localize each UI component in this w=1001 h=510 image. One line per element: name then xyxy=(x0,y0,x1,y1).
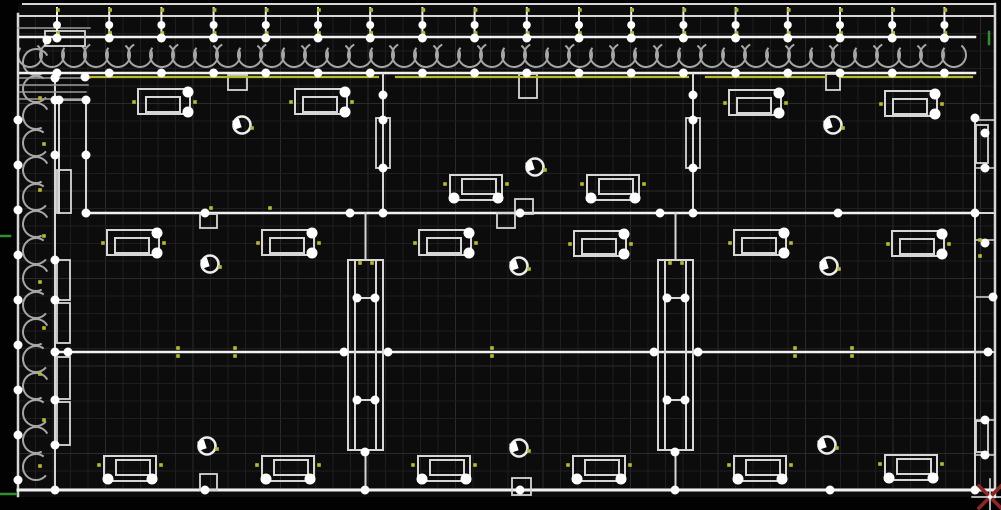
point-marker xyxy=(526,8,530,12)
grip-node xyxy=(930,109,941,120)
grip-node xyxy=(784,21,792,29)
grip-node xyxy=(14,296,23,305)
point-marker xyxy=(38,188,42,192)
point-marker xyxy=(255,463,259,467)
grip-node xyxy=(522,69,531,78)
grip-node xyxy=(834,209,843,218)
grip-node xyxy=(732,21,740,29)
grip-node xyxy=(366,69,375,78)
grip-node xyxy=(777,474,788,485)
point-marker xyxy=(233,354,237,358)
point-marker xyxy=(38,464,42,468)
grip-node xyxy=(340,107,351,118)
grip-node xyxy=(679,69,688,78)
point-marker xyxy=(505,182,509,186)
point-marker xyxy=(411,463,415,467)
grip-node xyxy=(522,34,531,43)
grip-node xyxy=(261,69,270,78)
grip-node xyxy=(379,164,388,173)
grip-node xyxy=(981,451,990,460)
grip-node xyxy=(314,34,323,43)
point-marker xyxy=(473,463,477,467)
point-marker xyxy=(978,254,982,258)
grip-node xyxy=(361,486,370,495)
grip-node xyxy=(663,294,672,303)
grip-node xyxy=(471,21,479,29)
grip-node xyxy=(43,36,52,45)
point-marker xyxy=(42,234,46,238)
grip-node xyxy=(51,396,60,405)
point-marker xyxy=(947,242,951,246)
grip-node xyxy=(779,228,790,239)
point-marker xyxy=(490,346,494,350)
grip-node xyxy=(971,209,980,218)
grip-node xyxy=(51,151,60,160)
grip-node xyxy=(586,193,597,204)
grip-node xyxy=(679,34,688,43)
point-marker xyxy=(256,241,260,245)
grip-node xyxy=(384,348,393,357)
grip-node xyxy=(616,474,627,485)
grip-node xyxy=(928,473,939,484)
grip-node xyxy=(464,228,475,239)
point-marker xyxy=(218,265,222,269)
grip-node xyxy=(379,91,388,100)
grip-node xyxy=(940,21,948,29)
point-marker xyxy=(527,267,531,271)
point-marker xyxy=(370,261,374,265)
grip-node xyxy=(930,89,941,100)
grip-node xyxy=(937,249,948,260)
grip-node xyxy=(627,69,636,78)
grip-node xyxy=(689,209,698,218)
grip-node xyxy=(656,209,665,218)
point-marker xyxy=(209,206,213,210)
grip-node xyxy=(470,34,479,43)
point-marker xyxy=(735,8,739,12)
point-marker xyxy=(580,182,584,186)
grip-node xyxy=(984,348,993,357)
point-marker xyxy=(789,463,793,467)
grip-node xyxy=(14,431,23,440)
grip-node xyxy=(371,294,380,303)
grip-node xyxy=(981,129,990,138)
grip-node xyxy=(681,294,690,303)
point-marker xyxy=(474,8,478,12)
grip-node xyxy=(201,486,210,495)
point-marker xyxy=(176,354,180,358)
grip-node xyxy=(379,116,388,125)
point-marker xyxy=(944,8,948,12)
grip-node xyxy=(627,21,635,29)
point-marker xyxy=(978,238,982,242)
grip-node xyxy=(774,108,785,119)
point-marker xyxy=(566,463,570,467)
grip-node xyxy=(731,69,740,78)
grip-node xyxy=(516,209,525,218)
grip-node xyxy=(689,116,698,125)
grip-node xyxy=(261,474,272,485)
point-marker xyxy=(42,326,46,330)
point-marker xyxy=(728,241,732,245)
point-marker xyxy=(108,8,112,12)
point-marker xyxy=(680,261,684,265)
grip-node xyxy=(51,74,60,83)
point-marker xyxy=(159,463,163,467)
grip-node xyxy=(681,396,690,405)
point-marker xyxy=(784,101,788,105)
grip-node xyxy=(888,69,897,78)
grip-node xyxy=(201,209,210,218)
grip-node xyxy=(981,239,990,248)
point-marker xyxy=(568,242,572,246)
point-marker xyxy=(233,346,237,350)
grip-node xyxy=(157,69,166,78)
grip-node xyxy=(940,69,949,78)
point-marker xyxy=(787,8,791,12)
point-marker xyxy=(793,354,797,358)
point-marker xyxy=(38,372,42,376)
grip-node xyxy=(650,348,659,357)
point-marker xyxy=(97,463,101,467)
grip-node xyxy=(774,88,785,99)
point-marker xyxy=(490,354,494,358)
grip-node xyxy=(51,296,60,305)
point-marker xyxy=(289,100,293,104)
grip-node xyxy=(14,116,23,125)
grip-node xyxy=(55,96,64,105)
point-marker xyxy=(215,447,219,451)
grip-node xyxy=(147,474,158,485)
grip-node xyxy=(152,228,163,239)
point-marker xyxy=(132,100,136,104)
grip-node xyxy=(340,348,349,357)
grip-node xyxy=(183,107,194,118)
grip-node xyxy=(53,21,61,29)
grip-node xyxy=(14,251,23,260)
grip-node xyxy=(989,293,998,302)
point-marker xyxy=(56,8,60,12)
grip-node xyxy=(14,476,23,485)
grip-node xyxy=(940,34,949,43)
grip-node xyxy=(82,96,91,105)
grip-node xyxy=(314,69,323,78)
point-marker xyxy=(668,261,672,265)
grip-node xyxy=(353,396,362,405)
grip-node xyxy=(366,21,374,29)
point-marker xyxy=(727,463,731,467)
point-marker xyxy=(42,418,46,422)
point-marker xyxy=(161,8,165,12)
grip-node xyxy=(14,386,23,395)
grip-node xyxy=(152,248,163,259)
grip-node xyxy=(82,209,91,218)
grip-node xyxy=(836,21,844,29)
grip-node xyxy=(779,248,790,259)
point-marker xyxy=(317,8,321,12)
grip-node xyxy=(619,249,630,260)
grip-node xyxy=(937,229,948,240)
point-marker xyxy=(350,100,354,104)
grip-node xyxy=(346,209,355,218)
point-marker xyxy=(642,182,646,186)
grip-node xyxy=(971,114,980,123)
point-marker xyxy=(835,446,839,450)
grip-node xyxy=(981,416,990,425)
point-marker xyxy=(891,8,895,12)
grip-node xyxy=(340,87,351,98)
point-marker xyxy=(193,100,197,104)
grip-node xyxy=(417,474,428,485)
grip-node xyxy=(209,34,218,43)
grip-node xyxy=(183,87,194,98)
grip-node xyxy=(361,448,370,457)
grip-node xyxy=(64,348,73,357)
grip-node xyxy=(305,474,316,485)
grip-node xyxy=(105,69,114,78)
grip-node xyxy=(82,151,91,160)
point-marker xyxy=(250,126,254,130)
point-marker xyxy=(629,242,633,246)
point-marker xyxy=(543,168,547,172)
grip-node xyxy=(575,69,584,78)
cad-canvas[interactable] xyxy=(0,0,1001,510)
point-marker xyxy=(38,280,42,284)
point-marker xyxy=(101,241,105,245)
point-marker xyxy=(268,206,272,210)
grip-node xyxy=(14,206,23,215)
point-marker xyxy=(176,346,180,350)
grip-node xyxy=(262,21,270,29)
grip-node xyxy=(51,486,60,495)
grip-node xyxy=(733,474,744,485)
point-marker xyxy=(527,449,531,453)
grip-node xyxy=(371,396,380,405)
grip-node xyxy=(418,34,427,43)
grip-node xyxy=(694,348,703,357)
grip-node xyxy=(314,21,322,29)
point-marker xyxy=(443,182,447,186)
grip-node xyxy=(307,228,318,239)
grip-node xyxy=(671,448,680,457)
point-marker xyxy=(683,8,687,12)
grip-node xyxy=(105,21,113,29)
grip-node xyxy=(826,486,835,495)
grip-node xyxy=(105,34,114,43)
grip-node xyxy=(366,34,375,43)
point-marker xyxy=(358,261,362,265)
grip-node xyxy=(51,441,60,450)
point-marker xyxy=(265,8,269,12)
grip-node xyxy=(671,486,680,495)
grip-node xyxy=(575,21,583,29)
grip-node xyxy=(679,21,687,29)
point-marker xyxy=(422,8,426,12)
grip-node xyxy=(663,396,672,405)
grip-node xyxy=(14,341,23,350)
grip-node xyxy=(836,34,845,43)
grip-node xyxy=(51,348,60,357)
point-marker xyxy=(879,102,883,106)
point-marker xyxy=(578,8,582,12)
grip-node xyxy=(888,34,897,43)
point-marker xyxy=(162,241,166,245)
grip-node xyxy=(81,73,90,82)
point-marker xyxy=(413,241,417,245)
grip-node xyxy=(627,34,636,43)
point-marker xyxy=(793,346,797,350)
grip-node xyxy=(157,34,166,43)
grip-node xyxy=(157,21,165,29)
grip-node xyxy=(689,91,698,100)
grip-node xyxy=(53,34,62,43)
grip-node xyxy=(783,34,792,43)
grip-node xyxy=(418,21,426,29)
grip-node xyxy=(461,474,472,485)
cad-application-window xyxy=(0,0,1001,510)
point-marker xyxy=(837,267,841,271)
grip-node xyxy=(449,193,460,204)
grip-node xyxy=(523,21,531,29)
grip-node xyxy=(353,294,362,303)
point-marker xyxy=(317,241,321,245)
point-marker xyxy=(723,101,727,105)
grip-node xyxy=(731,34,740,43)
point-marker xyxy=(839,8,843,12)
point-marker xyxy=(940,102,944,106)
grip-node xyxy=(261,34,270,43)
grip-node xyxy=(619,229,630,240)
grip-node xyxy=(630,193,641,204)
point-marker xyxy=(886,242,890,246)
grip-node xyxy=(884,473,895,484)
grip-node xyxy=(14,161,23,170)
grip-node xyxy=(689,164,698,173)
grip-node xyxy=(575,34,584,43)
point-marker xyxy=(369,8,373,12)
point-marker xyxy=(628,463,632,467)
point-marker xyxy=(317,463,321,467)
grip-node xyxy=(572,474,583,485)
point-marker xyxy=(213,8,217,12)
grip-node xyxy=(836,69,845,78)
point-marker xyxy=(878,462,882,466)
point-marker xyxy=(38,96,42,100)
grip-node xyxy=(516,486,525,495)
point-marker xyxy=(850,354,854,358)
point-marker xyxy=(474,241,478,245)
grip-node xyxy=(470,69,479,78)
point-marker xyxy=(940,462,944,466)
grip-node xyxy=(307,248,318,259)
grip-node xyxy=(888,21,896,29)
grip-node xyxy=(51,256,60,265)
point-marker xyxy=(841,126,845,130)
grip-node xyxy=(493,193,504,204)
grip-node xyxy=(464,248,475,259)
grip-node xyxy=(103,474,114,485)
point-marker xyxy=(850,346,854,350)
grip-node xyxy=(783,69,792,78)
grip-node xyxy=(418,69,427,78)
point-marker xyxy=(630,8,634,12)
point-marker xyxy=(42,142,46,146)
point-marker xyxy=(789,241,793,245)
cursor-center xyxy=(988,495,992,499)
grip-node xyxy=(379,209,388,218)
grip-node xyxy=(209,69,218,78)
grip-node xyxy=(210,21,218,29)
grip-node xyxy=(981,164,990,173)
